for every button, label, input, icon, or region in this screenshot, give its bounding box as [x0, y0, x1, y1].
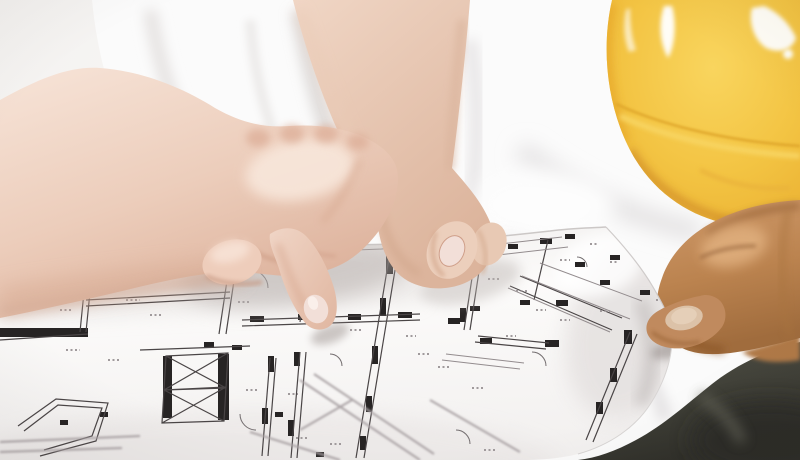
vignette-overlay: [0, 0, 800, 460]
photo-scene: [0, 0, 800, 460]
photo-canvas: [0, 0, 800, 460]
